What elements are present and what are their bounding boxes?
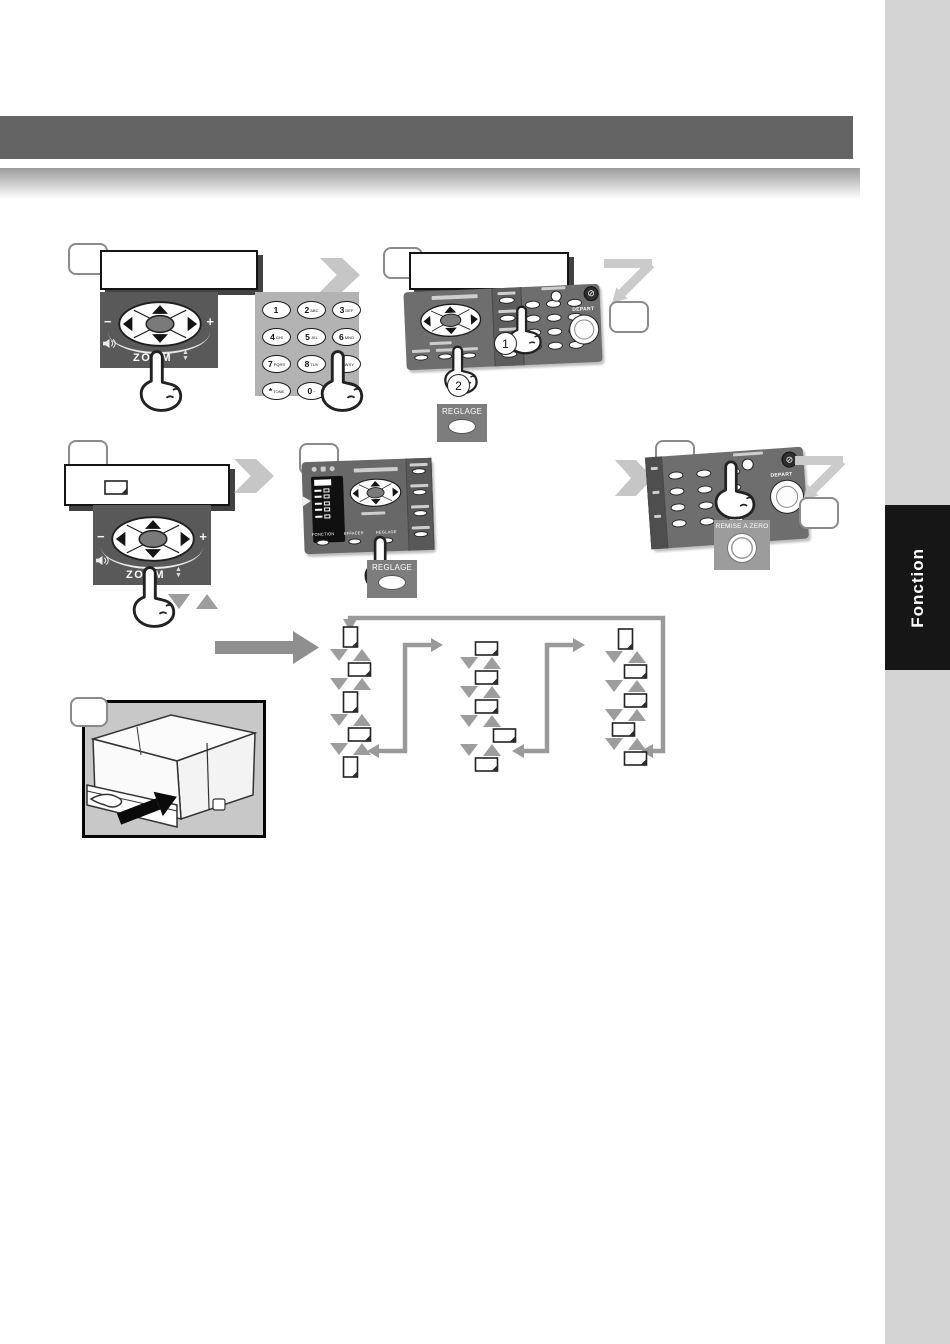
down-up-arrows-icon — [460, 744, 501, 756]
down-up-arrows-icon — [605, 709, 646, 721]
keypad-key-3: 3DEF — [332, 301, 361, 319]
tiny-label-bar — [733, 451, 763, 456]
mini-key — [668, 471, 684, 480]
page-title-bar — [0, 116, 853, 159]
depart-button — [569, 314, 600, 345]
indicator-pointer-icon — [303, 496, 311, 506]
paper-landscape-icon — [623, 693, 648, 708]
paper-tray-drawing — [85, 703, 263, 835]
tiny-label-bar — [412, 349, 430, 353]
next-step-chevron-icon — [234, 459, 274, 493]
step-box-5b — [799, 497, 839, 529]
keypad-key-1: 1 — [262, 301, 291, 319]
section-gradient-bar — [0, 168, 860, 199]
paper-landscape-icon — [474, 641, 499, 656]
fonction-label: FONCTION — [312, 531, 335, 537]
down-up-arrows-icon — [330, 649, 371, 661]
down-up-arrows-icon — [460, 686, 501, 698]
step-box-2b — [609, 301, 649, 333]
mini-key — [670, 503, 686, 512]
down-up-arrows-icon — [330, 678, 371, 690]
mini-key — [548, 341, 563, 350]
tiny-label-bar — [432, 294, 478, 300]
nav-pad-icon — [418, 301, 484, 340]
paper-landscape-icon — [474, 757, 499, 772]
mini-key — [547, 327, 562, 336]
step-marker-1: 1 — [494, 332, 517, 355]
hand-cursor-icon — [712, 458, 758, 522]
down-up-arrows-icon — [460, 657, 501, 669]
hand-cursor-icon — [318, 348, 366, 414]
tiny-glyph — [312, 467, 317, 472]
reglage-button-callout: REGLAGE — [367, 560, 417, 598]
keypad-key-6: 6MNO — [332, 328, 361, 346]
tiny-label-bar — [354, 467, 398, 473]
paper-portrait-icon — [617, 628, 634, 650]
effacer-label: EFFACER — [344, 530, 364, 536]
hand-cursor-icon — [137, 348, 185, 414]
mini-key — [546, 313, 561, 322]
flow-column-2 — [440, 641, 520, 772]
tiny-label-bar — [541, 286, 565, 290]
paper-landscape-icon — [611, 722, 636, 737]
keypad-key-4: 4GHI — [262, 328, 291, 346]
fonction-tab-label: Fonction — [908, 548, 928, 628]
mini-key — [671, 519, 687, 528]
flow-column-3 — [585, 628, 665, 766]
manual-page: Fonction − + ZOOM ▲▼ 12ABC3DEF4GHI5JKL6M… — [0, 0, 950, 1344]
printer-illustration — [82, 700, 266, 838]
paper-landscape-icon — [474, 699, 499, 714]
remise-a-zero-button-callout: REMISE A ZERO — [714, 520, 770, 570]
keypad-key-2: 2ABC — [297, 301, 326, 319]
mini-key — [696, 469, 712, 478]
down-up-arrows-icon — [330, 743, 371, 755]
reglage-button-callout: REGLAGE — [437, 404, 487, 442]
paper-portrait-icon — [342, 691, 359, 713]
down-up-arrows-icon — [330, 714, 371, 726]
keypad-key-7: 7PQRS — [262, 355, 291, 373]
paper-landscape-icon — [623, 751, 648, 766]
reglage-label: REGLAGE — [367, 563, 417, 572]
down-up-arrows-icon — [168, 594, 218, 609]
down-up-arrows-icon — [605, 680, 646, 692]
panel-edge-strip — [645, 456, 668, 549]
reglage-key-icon — [448, 419, 476, 434]
fonction-tab: Fonction — [885, 505, 950, 670]
remise-a-zero-key-icon — [727, 533, 757, 563]
down-up-arrows-icon — [460, 715, 501, 727]
lcd-screen-3 — [64, 464, 230, 506]
sidebar-strip — [885, 0, 950, 1344]
nav-pad-icon — [348, 477, 403, 509]
speaker-icon — [95, 555, 110, 566]
control-panel-step2: ⊘ DEPART — [403, 284, 602, 370]
tiny-glyph — [321, 466, 326, 471]
tiny-label-bar — [361, 511, 385, 515]
speaker-icon — [102, 338, 117, 349]
paper-landscape-icon — [347, 727, 372, 742]
lcd-screen-2 — [409, 252, 569, 290]
paper-landscape-icon — [492, 728, 517, 743]
paper-portrait-icon — [342, 756, 359, 778]
effacer-button — [348, 538, 361, 544]
mini-key — [697, 485, 713, 494]
fonction-button — [316, 539, 329, 545]
lcd-screen-1 — [100, 250, 258, 290]
step-box-6 — [70, 697, 108, 727]
paper-landscape-icon — [623, 664, 648, 679]
flow-column-1 — [305, 626, 395, 778]
keypad-key-*: *TONE — [262, 382, 291, 400]
depart-label: DEPART — [572, 306, 594, 313]
flow-entry-arrow-icon — [215, 631, 319, 664]
paper-portrait-icon — [342, 626, 359, 648]
stop-button: ⊘ — [583, 286, 599, 302]
keypad-key-5: 5JKL — [297, 328, 326, 346]
next-step-chevron-icon — [320, 258, 360, 292]
paper-landscape-icon — [347, 662, 372, 677]
down-up-arrows-icon — [605, 651, 646, 663]
reglage-label: REGLAGE — [437, 407, 487, 416]
mini-key — [669, 487, 685, 496]
step-marker-2: 2 — [447, 374, 470, 397]
reglage-key-icon — [378, 575, 406, 590]
paper-landscape-icon — [104, 480, 128, 495]
tiny-glyph — [330, 466, 335, 471]
mode-button-strip — [405, 458, 434, 551]
paper-landscape-icon — [474, 670, 499, 685]
nav-arc — [101, 525, 203, 569]
remise-a-zero-label: REMISE A ZERO — [714, 523, 770, 530]
down-up-arrows-icon — [605, 738, 646, 750]
panel-button — [414, 354, 428, 361]
